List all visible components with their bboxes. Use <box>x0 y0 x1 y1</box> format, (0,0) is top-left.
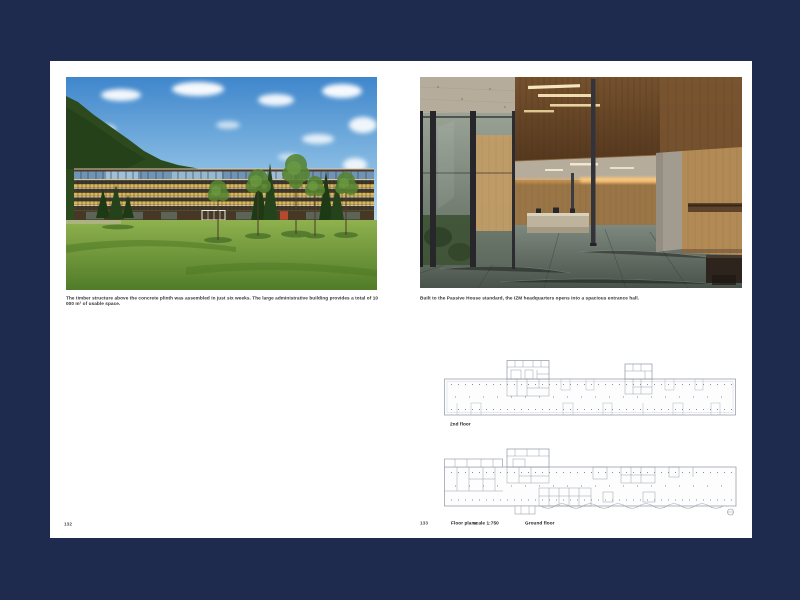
right-page: Built to the Passive House standard, the… <box>401 61 752 538</box>
red-entrance-door <box>280 211 288 220</box>
entrance-hall-photo <box>420 77 742 288</box>
left-page-number: 132 <box>64 521 72 527</box>
concrete-pillar <box>656 151 682 252</box>
plan-marker-icon <box>728 509 734 515</box>
footer-scale-label: scale 1:750 <box>473 520 499 526</box>
book-viewer-background: { "book": { "left_page": { "page_number"… <box>0 0 800 600</box>
second-floor-plan <box>443 358 737 421</box>
building-exterior-photo <box>66 77 377 290</box>
left-photo-caption: The timber structure above the concrete … <box>66 295 380 306</box>
glass-facade <box>420 111 515 269</box>
ground-floor-plan <box>443 446 737 521</box>
plan-label-2nd-floor: 2nd floor <box>450 421 471 427</box>
left-page: The timber structure above the concrete … <box>50 61 401 538</box>
book-spread: The timber structure above the concrete … <box>50 61 752 538</box>
right-photo-caption: Built to the Passive House standard, the… <box>420 295 740 301</box>
steel-column-left <box>430 111 436 267</box>
steel-column-mid <box>470 111 476 267</box>
plan-label-ground-floor: Ground floor <box>525 520 555 526</box>
right-page-number: 133 <box>420 520 428 526</box>
wall-niche <box>688 203 742 212</box>
steel-column-center <box>591 79 596 245</box>
right-wood-wall <box>682 147 742 255</box>
bench-table <box>706 255 742 285</box>
